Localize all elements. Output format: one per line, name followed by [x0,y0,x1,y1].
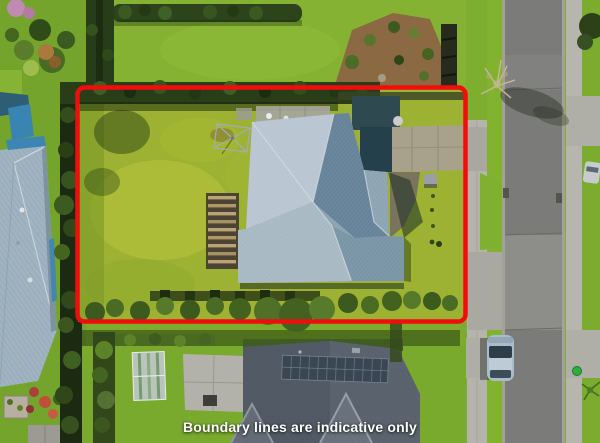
garden-sphere [393,116,403,126]
greenhouse [132,351,166,400]
storm-drain [556,193,562,203]
parking-apron [468,252,504,330]
silver-car [583,161,600,184]
storm-drain [503,188,509,198]
green-bin [573,367,582,376]
satellite-dish [266,113,272,119]
street [466,0,600,443]
parked-car [480,335,514,381]
solar-panels [282,355,389,383]
aerial-photo: Boundary lines are indicative only [0,0,600,443]
pergola [206,193,239,269]
aerial-photo-canvas [0,0,600,443]
